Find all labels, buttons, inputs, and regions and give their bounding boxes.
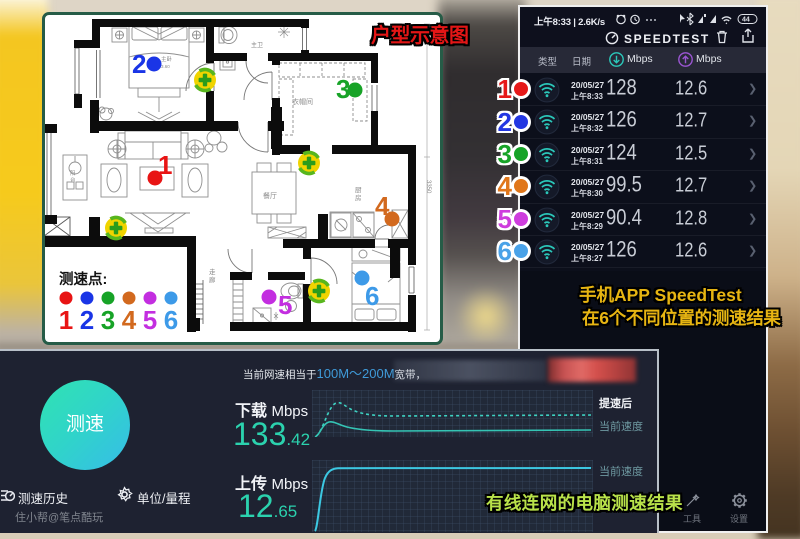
svg-text:主卫: 主卫 <box>251 41 263 49</box>
svg-text:4: 4 <box>122 305 137 335</box>
svg-text:廊: 廊 <box>209 275 216 284</box>
svg-text:阳: 阳 <box>70 169 76 177</box>
svg-text:3: 3 <box>336 74 350 104</box>
svg-text:3.60: 3.60 <box>161 64 170 69</box>
svg-text:44: 44 <box>742 17 750 24</box>
svg-text:1: 1 <box>59 305 73 335</box>
svg-text:餐厅: 餐厅 <box>263 191 277 200</box>
svg-text:3: 3 <box>101 305 115 335</box>
svg-text:6: 6 <box>164 305 178 335</box>
svg-text:走: 走 <box>209 268 216 276</box>
svg-text:2: 2 <box>132 49 146 79</box>
svg-text:2: 2 <box>80 305 94 335</box>
svg-text:厨: 厨 <box>355 186 362 194</box>
svg-text:6: 6 <box>365 281 379 311</box>
svg-text:主卧: 主卧 <box>161 55 173 63</box>
svg-text:房: 房 <box>355 193 362 202</box>
svg-text:台: 台 <box>70 176 76 184</box>
svg-text:4: 4 <box>375 191 390 221</box>
svg-text:衣帽间: 衣帽间 <box>292 97 313 106</box>
svg-text:测速点:: 测速点: <box>59 270 107 288</box>
svg-text:5: 5 <box>143 305 157 335</box>
svg-text:3350: 3350 <box>425 180 431 194</box>
svg-text:1: 1 <box>158 150 172 180</box>
svg-text:5: 5 <box>278 290 292 320</box>
